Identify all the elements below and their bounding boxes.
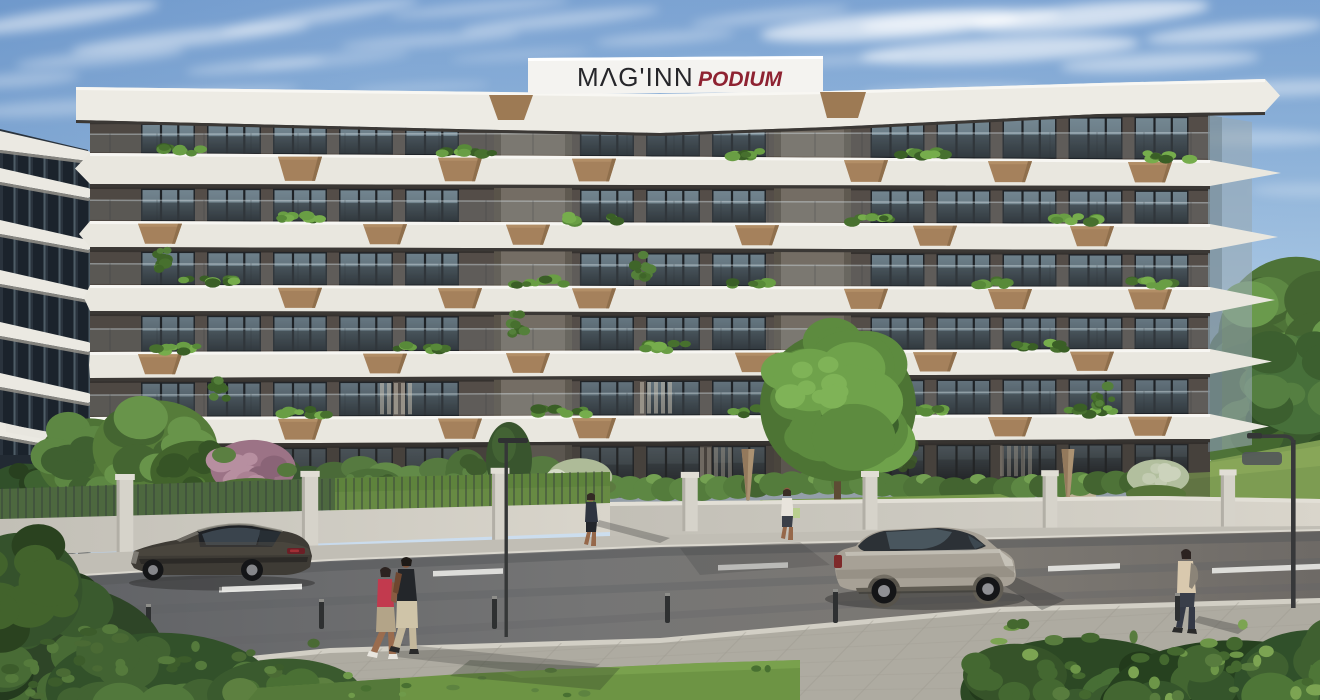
svg-text:MΛG'INN: MΛG'INN: [577, 62, 694, 92]
svg-text:PODIUM: PODIUM: [698, 68, 783, 91]
